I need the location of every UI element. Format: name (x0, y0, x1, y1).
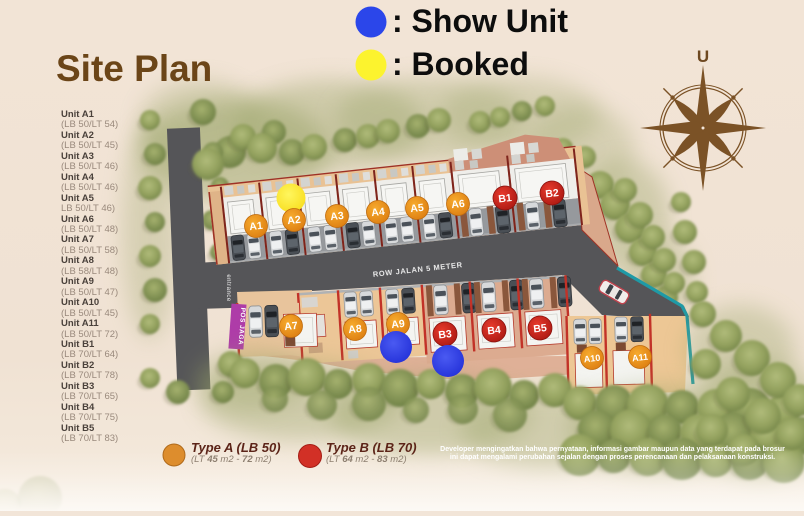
svg-text:A11: A11 (632, 352, 649, 364)
svg-text:A9: A9 (391, 318, 406, 331)
svg-text:A5: A5 (410, 202, 425, 215)
svg-text:U: U (697, 47, 709, 66)
svg-text:B1: B1 (498, 192, 513, 205)
svg-text:B5: B5 (533, 322, 548, 335)
svg-text:entrance: entrance (225, 274, 231, 302)
svg-text:A7: A7 (284, 320, 299, 333)
svg-text:A8: A8 (348, 323, 363, 336)
svg-text:A2: A2 (287, 214, 302, 227)
svg-text:B2: B2 (545, 187, 560, 200)
svg-text:A6: A6 (451, 198, 466, 211)
svg-text:B4: B4 (487, 324, 502, 337)
svg-text:A4: A4 (371, 206, 386, 219)
svg-text:A1: A1 (249, 220, 264, 233)
svg-text:A3: A3 (330, 210, 345, 223)
svg-text:A10: A10 (583, 353, 600, 365)
svg-text:B3: B3 (438, 328, 453, 341)
